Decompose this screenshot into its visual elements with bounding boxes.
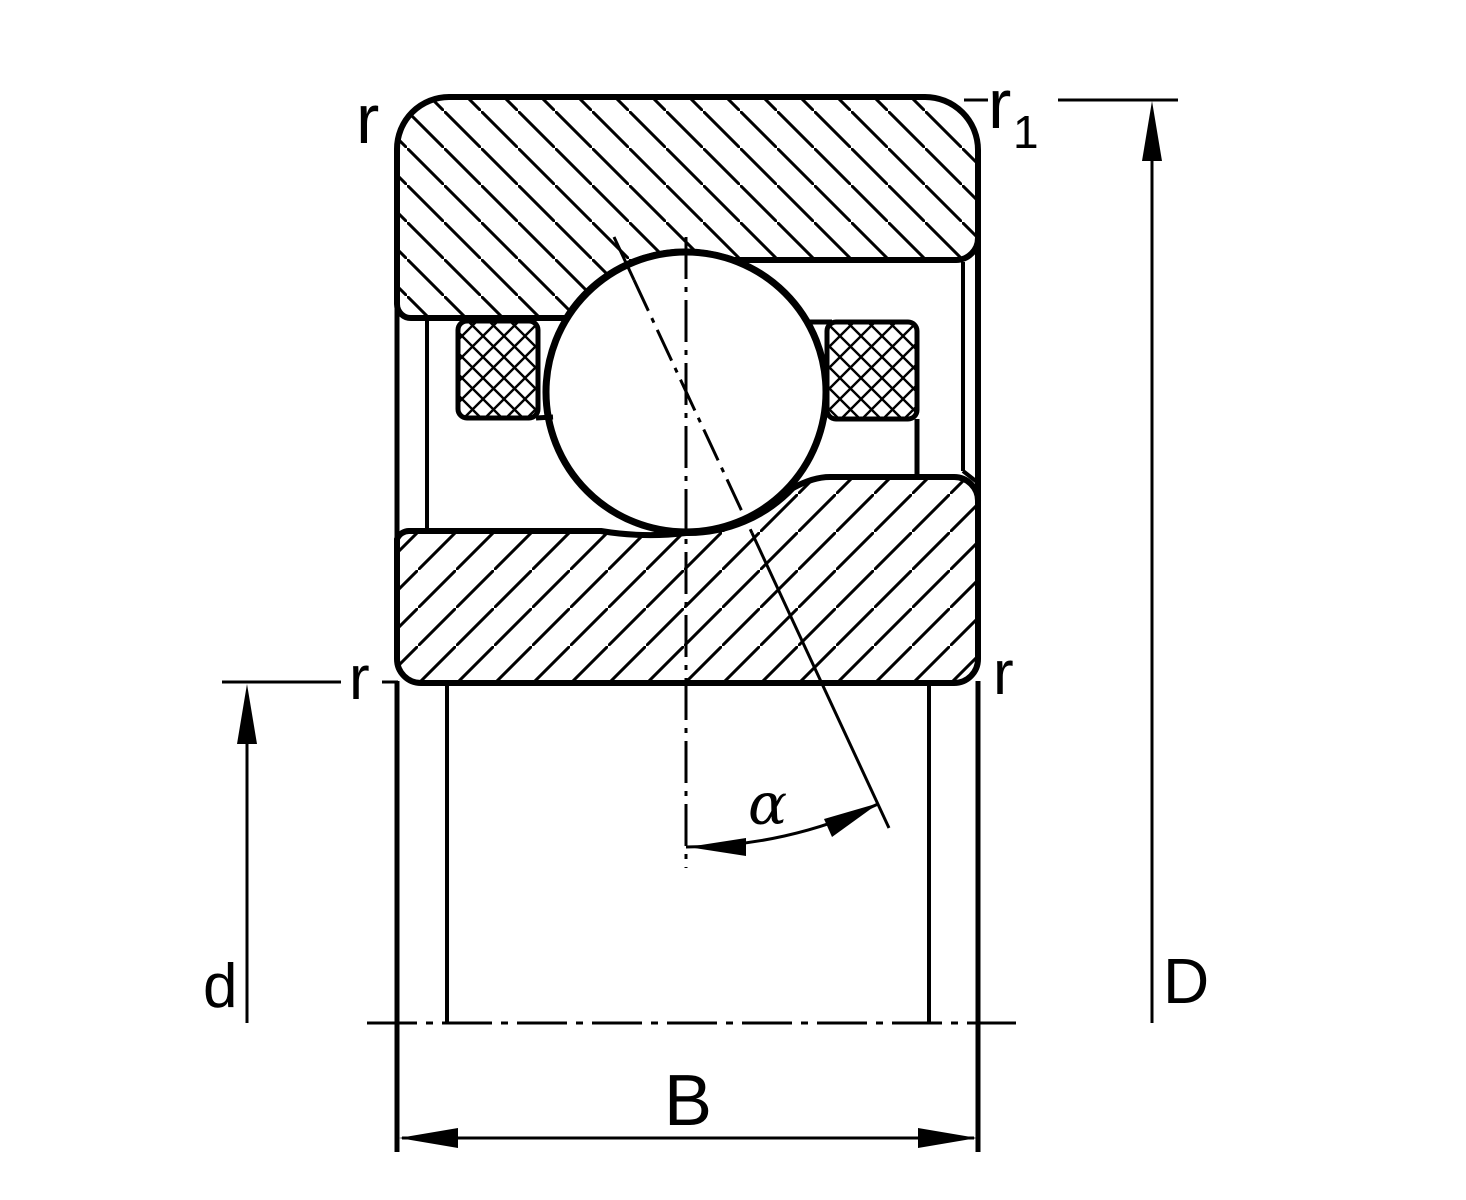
radius-label-mid-right: r	[993, 639, 1014, 708]
cage-pocket-right-section	[827, 322, 917, 419]
width-label: B	[664, 1061, 712, 1141]
contact-angle-label: α	[748, 770, 787, 838]
bore-diameter-label: d	[203, 952, 237, 1021]
outside-diameter-label: D	[1163, 945, 1209, 1017]
cage-pocket-left-section	[458, 321, 538, 418]
bearing-cross-section-page: α d D B r r 1 r r	[0, 0, 1466, 1200]
radius-label-mid-left: r	[349, 644, 370, 713]
bearing-cross-section-drawing: α d D B r r 1 r r	[0, 0, 1466, 1200]
radius-r1-subscript: 1	[1013, 106, 1039, 158]
cage-pocket-left	[458, 321, 553, 418]
radius-r1-base: r	[988, 65, 1011, 143]
cage-pocket-left-lip	[536, 417, 553, 418]
radius-label-top-left: r	[356, 80, 379, 158]
